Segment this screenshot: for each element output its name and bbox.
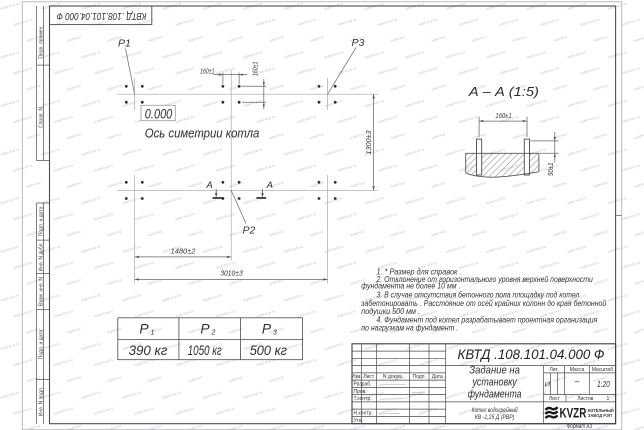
svg-text:установку: установку: [472, 376, 518, 388]
svg-text:50±1: 50±1: [546, 163, 555, 177]
svg-text:по нагрузкам на фундамент .: по нагрузкам на фундамент .: [361, 323, 458, 332]
svg-text:фундамента не более 10 мм: фундамента не более 10 мм .: [361, 282, 460, 291]
svg-text:Масса: Масса: [570, 367, 585, 373]
svg-text:фундамента: фундамента: [468, 388, 522, 400]
svg-text:1050 кг: 1050 кг: [188, 343, 222, 358]
svg-text:1300±3: 1300±3: [364, 130, 373, 155]
svg-text:Лит.: Лит.: [549, 367, 558, 373]
svg-text:Изм.: Изм.: [351, 374, 362, 380]
svg-text:Лист: Лист: [549, 396, 561, 402]
svg-text:Лист: Лист: [363, 374, 375, 380]
svg-text:1: 1: [151, 330, 155, 337]
svg-text:160±1: 160±1: [200, 66, 214, 75]
svg-text:Справ. N: Справ. N: [39, 107, 45, 128]
svg-text:Взам. инв. N: Взам. инв. N: [39, 277, 45, 307]
svg-text:Формат А3: Формат А3: [567, 424, 593, 430]
svg-text:Р: Р: [262, 321, 272, 336]
svg-text:3010±3: 3010±3: [220, 269, 243, 278]
svg-text:Р3: Р3: [352, 37, 365, 49]
svg-text:160±1: 160±1: [495, 111, 511, 120]
svg-text:N докум.: N докум.: [383, 374, 403, 380]
svg-text:Утв.: Утв.: [354, 418, 364, 424]
svg-text:Задание на: Задание на: [469, 364, 520, 376]
svg-text:И: И: [545, 379, 551, 388]
svg-text:КОТЕЛЬНЫЙ: КОТЕЛЬНЫЙ: [588, 406, 614, 413]
svg-text:КВ -1,25 Д (РВР): КВ -1,25 Д (РВР): [475, 414, 515, 421]
svg-text:Разраб.: Разраб.: [354, 382, 372, 388]
svg-text:КВТД .108.101.04.000 Ф: КВТД .108.101.04.000 Ф: [57, 10, 147, 21]
svg-text:А: А: [205, 180, 212, 191]
svg-text:KVZR: KVZR: [560, 405, 587, 420]
svg-text:А: А: [266, 180, 273, 191]
svg-text:Подп.: Подп.: [413, 374, 426, 380]
svg-text:Т.контр.: Т.контр.: [354, 396, 372, 402]
svg-text:А – А (1:5): А – А (1:5): [468, 84, 539, 99]
svg-text:Инв. N подл.: Инв. N подл.: [39, 387, 45, 416]
svg-text:Р: Р: [139, 321, 149, 336]
svg-text:1: 1: [607, 396, 610, 402]
svg-text:Ось симетрии котла: Ось симетрии котла: [145, 126, 259, 141]
svg-text:390 кг: 390 кг: [129, 343, 168, 358]
svg-text:Подп. и дата: Подп. и дата: [39, 330, 45, 360]
svg-text:Листов: Листов: [577, 396, 594, 402]
svg-text:1:20: 1:20: [597, 380, 610, 389]
svg-text:Дата: Дата: [432, 374, 443, 380]
svg-text:КВТД .108.101.04.000 Ф: КВТД .108.101.04.000 Ф: [458, 347, 605, 362]
svg-text:Инв. N дубл.: Инв. N дубл.: [39, 242, 45, 271]
svg-text:Перв. примен.: Перв. примен.: [39, 25, 45, 58]
svg-text:3: 3: [273, 330, 277, 337]
svg-text:Р: Р: [200, 321, 210, 336]
svg-text:160±1: 160±1: [251, 62, 260, 76]
svg-text:0.000: 0.000: [145, 106, 173, 121]
svg-text:ЗАВОД РЭП: ЗАВОД РЭП: [588, 413, 612, 418]
svg-text:Подп. и дата: Подп. и дата: [39, 207, 45, 237]
svg-text:Р1: Р1: [118, 38, 131, 50]
svg-text:Р2: Р2: [243, 225, 256, 237]
svg-text:Н.контр.: Н.контр.: [354, 411, 373, 417]
svg-text:500 кг: 500 кг: [250, 343, 288, 358]
svg-text:2: 2: [211, 330, 216, 337]
svg-text:Пров.: Пров.: [354, 389, 367, 395]
svg-text:Котел водогрейный: Котел водогрейный: [472, 406, 518, 414]
svg-text:Масштаб: Масштаб: [592, 367, 614, 373]
svg-text:1480±2: 1480±2: [171, 246, 197, 255]
svg-text:–: –: [574, 376, 580, 386]
